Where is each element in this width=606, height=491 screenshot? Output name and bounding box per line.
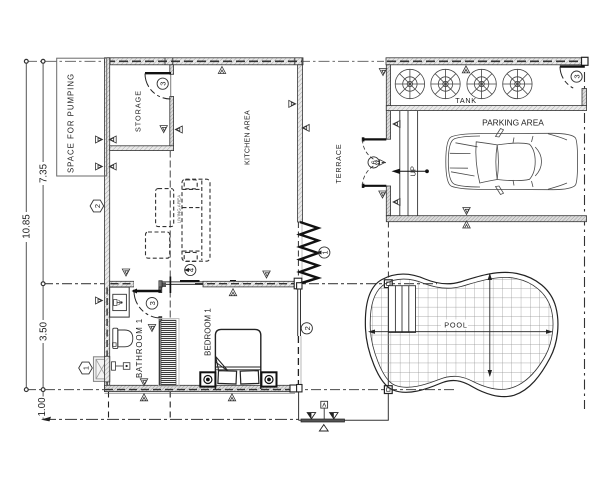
- svg-text:POOL: POOL: [444, 321, 467, 330]
- svg-text:TANK: TANK: [455, 96, 476, 105]
- svg-text:PARKING AREA: PARKING AREA: [482, 117, 544, 127]
- svg-text:SPACE FOR PUMPING: SPACE FOR PUMPING: [67, 73, 76, 173]
- svg-text:TERRACE: TERRACE: [334, 144, 343, 184]
- svg-text:1.00: 1.00: [37, 397, 48, 417]
- svg-text:2: 2: [93, 204, 102, 208]
- svg-text:UP: UP: [409, 166, 418, 177]
- svg-text:3: 3: [573, 75, 582, 79]
- svg-text:1: 1: [320, 250, 329, 254]
- svg-text:3.50: 3.50: [39, 321, 50, 341]
- svg-text:STORAGE: STORAGE: [134, 90, 143, 132]
- svg-text:BATHROOM 1: BATHROOM 1: [135, 318, 144, 378]
- svg-text:7.35: 7.35: [39, 163, 50, 183]
- svg-text:BEDROOM 1: BEDROOM 1: [204, 308, 213, 356]
- svg-text:2: 2: [303, 326, 312, 330]
- svg-text:3: 3: [159, 82, 168, 86]
- svg-text:1: 1: [82, 366, 91, 370]
- svg-text:10.85: 10.85: [22, 214, 33, 239]
- svg-text:KITCHEN AREA: KITCHEN AREA: [245, 110, 252, 165]
- svg-text:6: 6: [370, 160, 379, 164]
- svg-text:LIVING AREA: LIVING AREA: [177, 194, 182, 224]
- svg-text:3: 3: [148, 301, 157, 305]
